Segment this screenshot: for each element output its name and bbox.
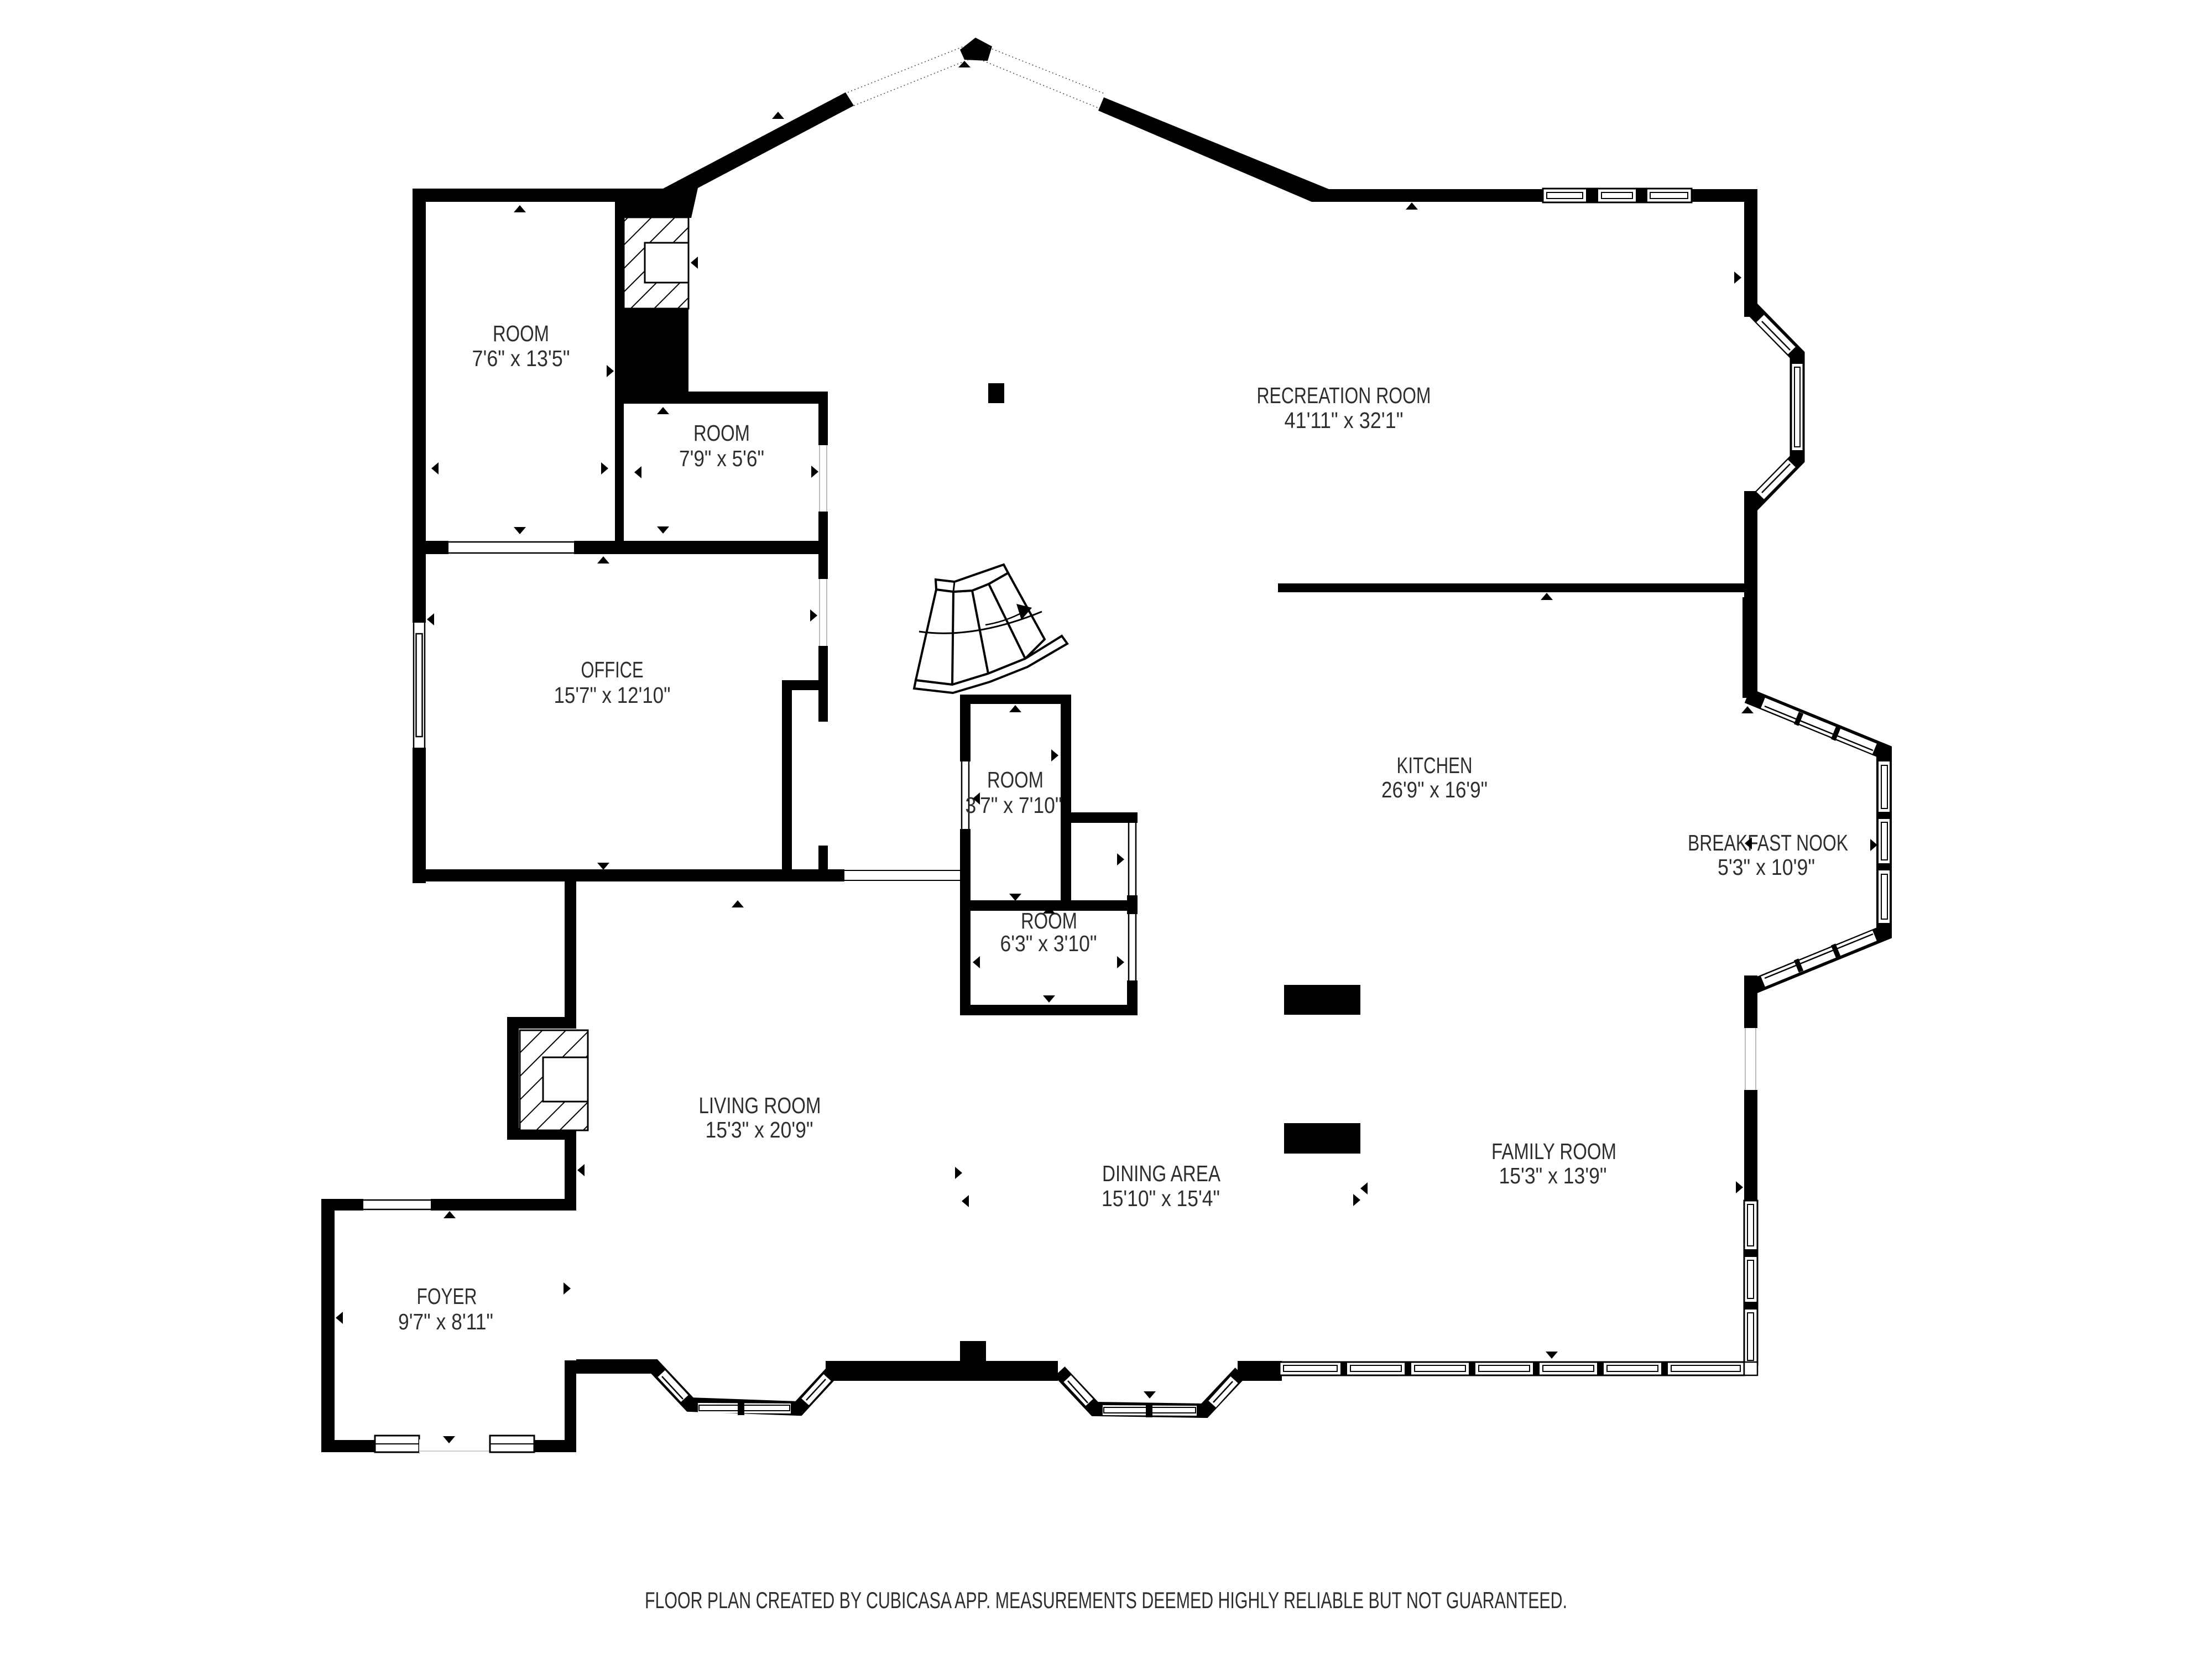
svg-text:7'6" x 13'5": 7'6" x 13'5" [472,346,570,371]
svg-text:15'3" x 13'9": 15'3" x 13'9" [1499,1163,1607,1188]
svg-text:15'3" x 20'9": 15'3" x 20'9" [706,1117,813,1142]
svg-text:ROOM: ROOM [493,321,549,346]
svg-text:FLOOR PLAN CREATED BY CUBICASA: FLOOR PLAN CREATED BY CUBICASA APP. MEAS… [645,1587,1567,1613]
svg-text:BREAKFAST NOOK: BREAKFAST NOOK [1688,830,1848,855]
svg-text:41'11" x 32'1": 41'11" x 32'1" [1285,408,1404,433]
svg-text:DINING AREA: DINING AREA [1102,1161,1221,1186]
svg-text:15'10" x 15'4": 15'10" x 15'4" [1102,1186,1220,1211]
svg-text:6'3" x 3'10": 6'3" x 3'10" [1000,931,1097,956]
svg-text:OFFICE: OFFICE [581,657,644,682]
svg-text:LIVING ROOM: LIVING ROOM [699,1093,821,1118]
svg-text:15'7" x 12'10": 15'7" x 12'10" [554,682,671,708]
svg-text:FOYER: FOYER [417,1284,477,1309]
svg-text:RECREATION ROOM: RECREATION ROOM [1257,383,1431,408]
svg-text:KITCHEN: KITCHEN [1397,753,1473,778]
svg-text:7'9" x 5'6": 7'9" x 5'6" [679,446,764,471]
svg-text:5'3" x 10'9": 5'3" x 10'9" [1718,854,1815,880]
svg-text:9'7" x 8'11": 9'7" x 8'11" [398,1309,493,1334]
svg-text:FAMILY ROOM: FAMILY ROOM [1491,1139,1616,1164]
svg-text:ROOM: ROOM [693,420,750,446]
svg-text:ROOM: ROOM [987,767,1044,792]
svg-text:26'9" x 16'9": 26'9" x 16'9" [1381,777,1488,802]
